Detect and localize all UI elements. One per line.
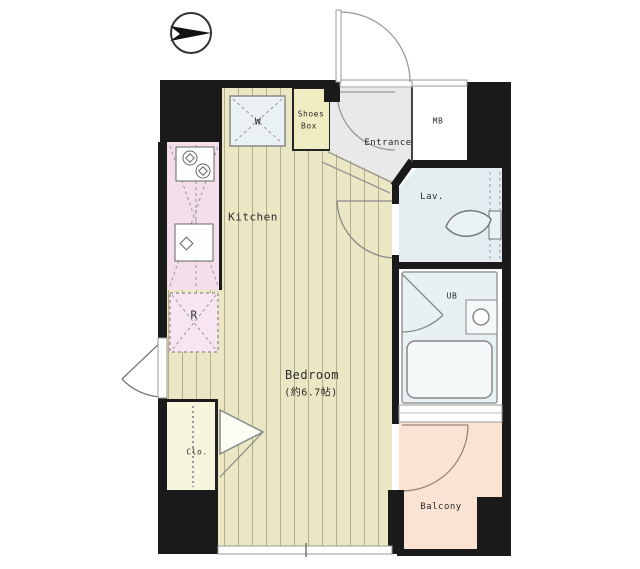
refrigerator-label: R <box>190 310 197 323</box>
closet-label: Clo. <box>186 447 207 456</box>
left-door-swing-icon <box>122 340 163 397</box>
kitchen-label: Kitchen <box>228 212 278 225</box>
stove-icon <box>176 147 214 181</box>
balcony-label: Balcony <box>420 502 461 512</box>
bedroom-label: Bedroom <box>285 369 339 383</box>
top-window <box>412 80 467 86</box>
entrance-door-swing-icon <box>336 10 410 82</box>
refrigerator-space <box>170 293 218 352</box>
bathtub-icon <box>407 341 492 398</box>
unit-bath-label: UB <box>447 291 458 300</box>
meter-box-label: MB <box>433 116 444 125</box>
floor-plan: Kitchen Bedroom (約6.7帖) Entrance Shoes B… <box>0 0 640 569</box>
bath-balcony-window <box>399 405 502 422</box>
shoes-box-label-line2: Box <box>301 121 317 130</box>
floor-plan-drawing <box>0 0 640 569</box>
entrance-label: Entrance <box>364 138 411 148</box>
bedroom-area-label: (約6.7帖) <box>284 387 338 399</box>
left-door-frame <box>158 338 167 398</box>
closet-area <box>167 402 218 490</box>
entrance-right-wall-line <box>411 86 413 162</box>
washing-machine-label: W <box>255 116 262 128</box>
north-arrow-icon <box>170 13 211 53</box>
kitchen-sink-icon <box>175 224 213 261</box>
shoes-box-label-line1: Shoes <box>298 109 325 118</box>
lavatory-label: Lav. <box>420 192 444 202</box>
bath-sink-icon <box>466 300 497 334</box>
entrance-threshold <box>340 80 412 87</box>
